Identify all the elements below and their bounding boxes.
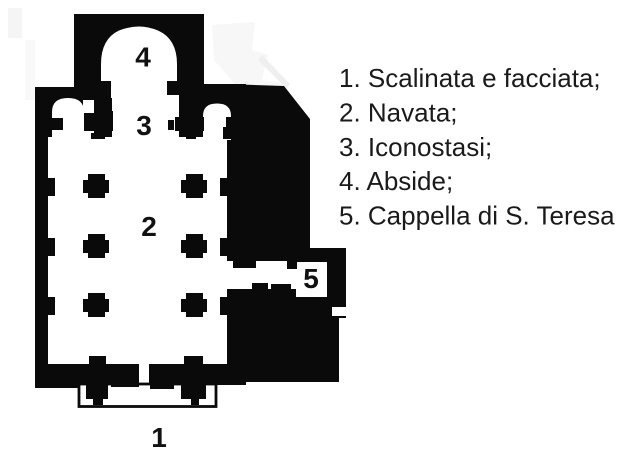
svg-text:4. Abside;: 4. Abside; [339,166,453,196]
svg-text:4: 4 [135,42,151,73]
svg-text:3: 3 [136,110,152,141]
svg-text:1. Scalinata e facciata;: 1. Scalinata e facciata; [339,63,601,93]
svg-text:5. Cappella di S. Teresa: 5. Cappella di S. Teresa [339,200,615,230]
svg-text:2: 2 [141,211,157,242]
svg-text:1: 1 [151,422,167,453]
svg-text:3. Iconostasi;: 3. Iconostasi; [339,132,492,162]
svg-text:5: 5 [303,263,319,294]
svg-text:2. Navata;: 2. Navata; [339,98,458,128]
